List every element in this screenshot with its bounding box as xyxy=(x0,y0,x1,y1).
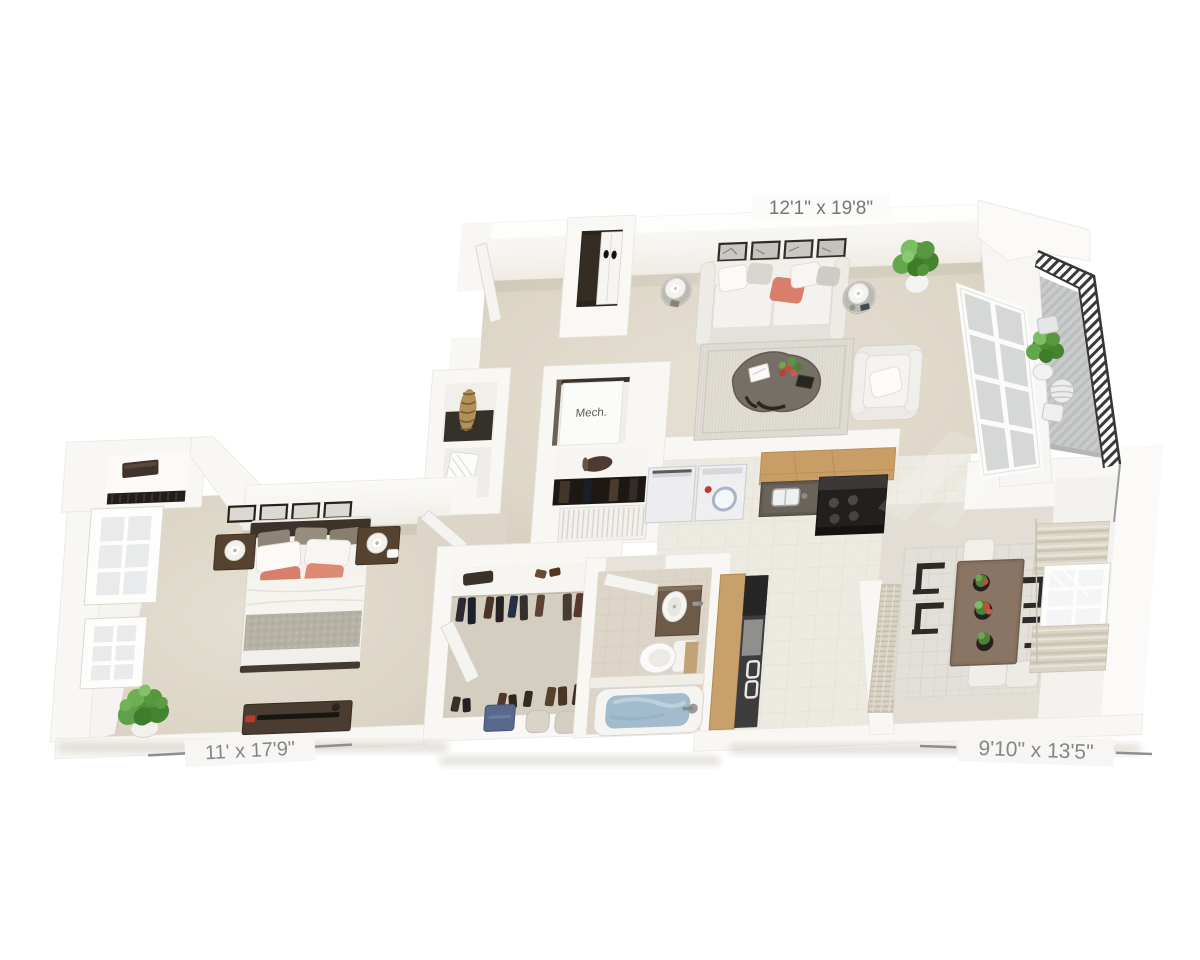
svg-text:11' x 17'9": 11' x 17'9" xyxy=(205,738,296,765)
svg-text:9'10" x 13'5": 9'10" x 13'5" xyxy=(978,737,1094,764)
svg-text:Mech.: Mech. xyxy=(575,407,607,420)
svg-text:12'1" x 19'8": 12'1" x 19'8" xyxy=(769,198,873,219)
